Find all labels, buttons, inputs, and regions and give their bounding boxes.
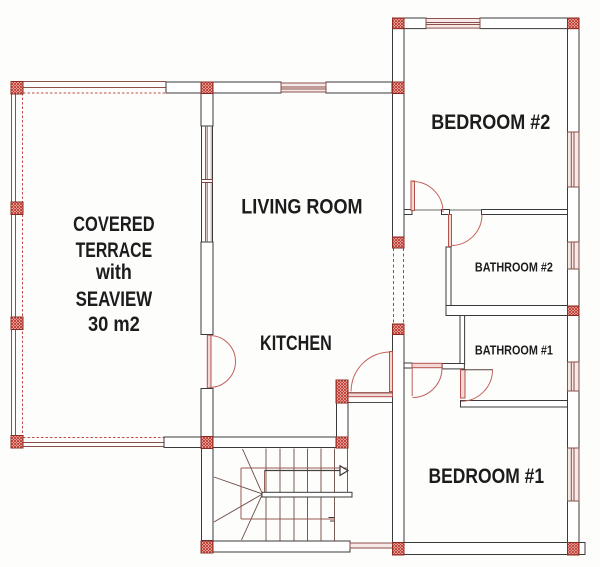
svg-text:TERRACE: TERRACE [76,238,153,262]
svg-text:SEAVIEW: SEAVIEW [76,287,153,311]
svg-text:COVERED: COVERED [73,212,155,236]
svg-text:BATHROOM #1: BATHROOM #1 [475,344,553,358]
svg-text:30 m2: 30 m2 [88,312,140,336]
svg-text:BATHROOM #2: BATHROOM #2 [475,260,553,274]
svg-text:with: with [95,260,132,284]
svg-text:BEDROOM #1: BEDROOM #1 [429,464,545,488]
svg-text:KITCHEN: KITCHEN [260,331,332,355]
svg-text:BEDROOM #2: BEDROOM #2 [431,110,550,134]
svg-text:LIVING ROOM: LIVING ROOM [241,194,362,218]
